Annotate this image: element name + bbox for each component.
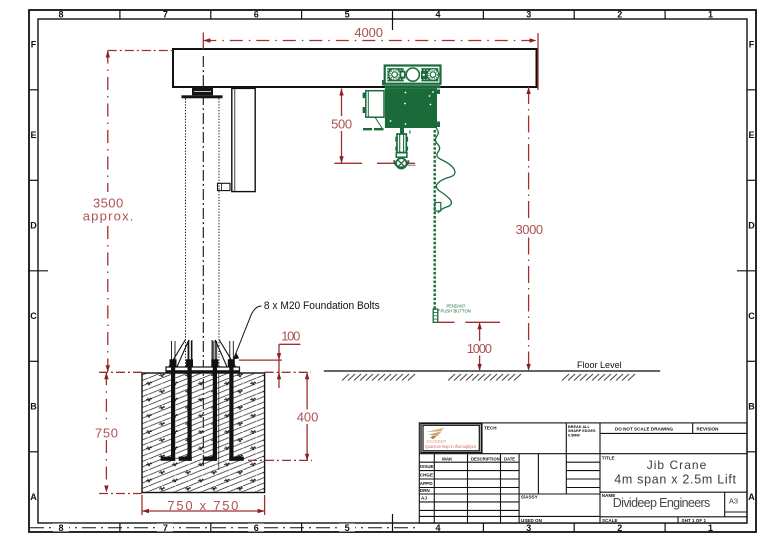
svg-text:Floor Level: Floor Level xyxy=(577,360,622,370)
svg-text:1: 1 xyxy=(708,10,713,20)
svg-text:USED ON: USED ON xyxy=(521,518,543,523)
svg-text:TITLE: TITLE xyxy=(602,455,615,460)
svg-text:CHGE: CHGE xyxy=(420,472,433,477)
svg-text:DO NOT SCALE DRAWING: DO NOT SCALE DRAWING xyxy=(615,427,674,432)
svg-text:8: 8 xyxy=(58,523,63,533)
svg-text:5: 5 xyxy=(345,10,350,20)
svg-text:Divideep Engineers: Divideep Engineers xyxy=(613,496,711,510)
svg-text:6: 6 xyxy=(254,10,259,20)
svg-text:500: 500 xyxy=(331,116,352,131)
svg-text:2: 2 xyxy=(617,523,622,533)
svg-text:5: 5 xyxy=(345,523,350,533)
svg-text:1000: 1000 xyxy=(467,341,492,356)
svg-text:3000: 3000 xyxy=(516,222,544,237)
svg-text:SCALE: SCALE xyxy=(602,518,618,523)
svg-text:2: 2 xyxy=(617,10,622,20)
svg-text:C: C xyxy=(748,311,755,321)
svg-text:DESCRIPTION: DESCRIPTION xyxy=(471,456,500,461)
svg-text:approx.: approx. xyxy=(83,209,134,224)
svg-text:C: C xyxy=(30,311,37,321)
svg-text:D: D xyxy=(30,221,37,231)
svg-text:B: B xyxy=(30,402,37,412)
svg-text:Quantum leap in thoroughput: Quantum leap in thoroughput xyxy=(425,444,477,449)
svg-text:4: 4 xyxy=(435,10,440,20)
svg-text:PUSH BUTTON: PUSH BUTTON xyxy=(441,308,471,313)
svg-text:ISSUE: ISSUE xyxy=(420,464,434,469)
svg-text:DATE: DATE xyxy=(504,456,515,461)
svg-text:A3: A3 xyxy=(729,497,738,506)
svg-text:F: F xyxy=(749,40,755,50)
svg-text:4m span x 2.5m Lift: 4m span x 2.5m Lift xyxy=(614,472,736,486)
svg-text:400: 400 xyxy=(297,410,319,425)
svg-text:E: E xyxy=(30,130,36,140)
svg-text:D: D xyxy=(748,221,755,231)
svg-text:A: A xyxy=(748,492,755,502)
svg-text:A: A xyxy=(30,492,37,502)
svg-text:0.5MM: 0.5MM xyxy=(568,434,580,438)
svg-text:TECH: TECH xyxy=(484,426,497,431)
svg-text:APPD: APPD xyxy=(420,481,433,486)
svg-text:3: 3 xyxy=(526,10,531,20)
svg-text:Jib Crane: Jib Crane xyxy=(647,458,707,472)
svg-text:750: 750 xyxy=(95,426,118,441)
svg-text:6: 6 xyxy=(254,523,259,533)
svg-text:SHARP EDGES: SHARP EDGES xyxy=(568,429,596,433)
svg-text:7: 7 xyxy=(163,10,168,20)
svg-text:1: 1 xyxy=(708,523,713,533)
svg-text:F: F xyxy=(31,40,37,50)
svg-text:SHT 1 OF 1: SHT 1 OF 1 xyxy=(682,518,707,523)
svg-text:DRN: DRN xyxy=(420,488,431,493)
svg-text:AJ: AJ xyxy=(421,496,427,501)
svg-text:8 x M20 Foundation Bolts: 8 x M20 Foundation Bolts xyxy=(264,300,380,312)
svg-text:100: 100 xyxy=(281,328,300,343)
svg-text:8: 8 xyxy=(58,10,63,20)
svg-text:4: 4 xyxy=(435,523,440,533)
svg-text:S/ASSY: S/ASSY xyxy=(521,495,538,500)
svg-text:MAK: MAK xyxy=(442,456,453,461)
svg-text:REVISION: REVISION xyxy=(697,427,720,432)
svg-text:7: 7 xyxy=(163,523,168,533)
svg-text:4000: 4000 xyxy=(354,25,383,40)
svg-text:750 x 750: 750 x 750 xyxy=(167,498,238,513)
svg-text:E: E xyxy=(748,130,754,140)
svg-text:B: B xyxy=(748,402,755,412)
svg-text:3: 3 xyxy=(526,523,531,533)
